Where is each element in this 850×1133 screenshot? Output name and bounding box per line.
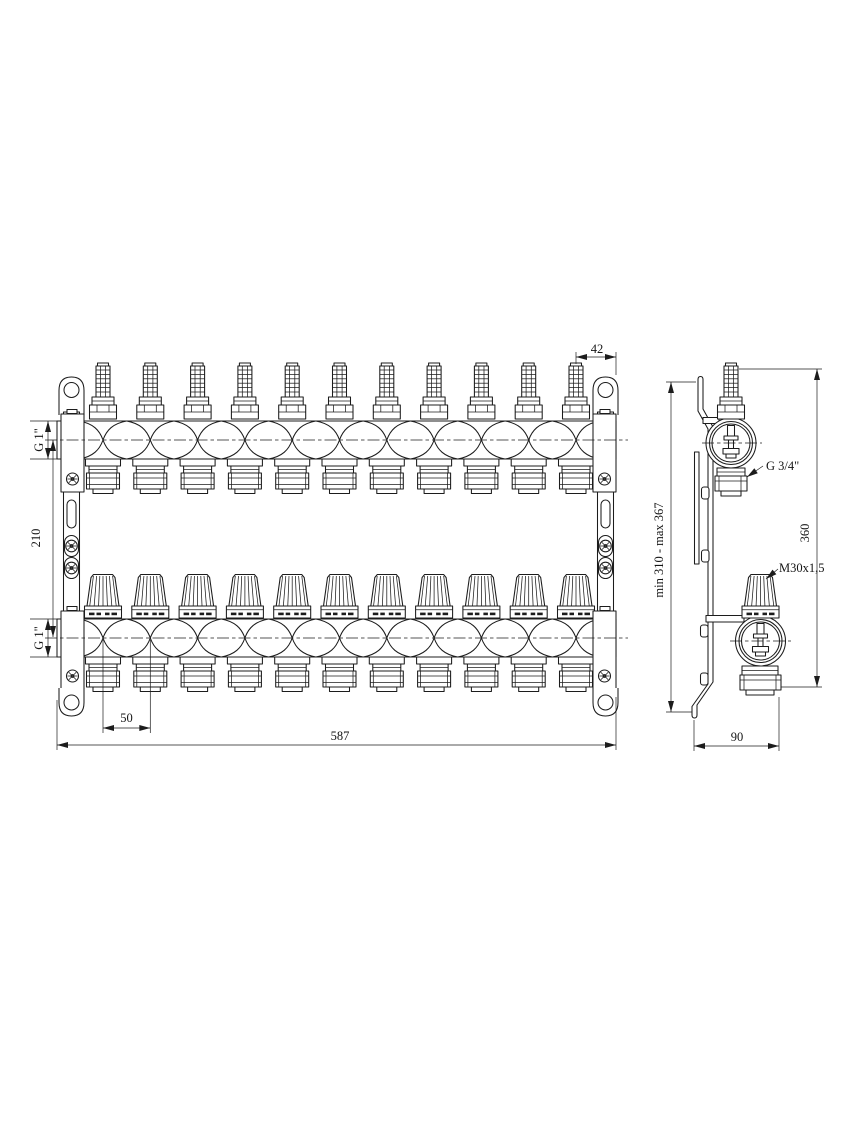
- compression-fitting-top: [322, 459, 357, 494]
- dimension-axis-distance: 210: [29, 440, 53, 637]
- compression-fitting-bottom: [559, 657, 594, 692]
- flow-valve-stem: [373, 363, 400, 419]
- outlet-thread-label: G 3/4": [766, 459, 799, 473]
- front-view: 42G 1"210G 1"50587: [29, 342, 628, 750]
- screw-icon: [66, 562, 78, 574]
- screw-icon: [600, 562, 612, 574]
- inlet-thread-bottom-label: G 1": [32, 626, 46, 650]
- flow-valve-stem: [421, 363, 448, 419]
- compression-fitting-top: [559, 459, 594, 494]
- side-bottom-assembly: [730, 575, 791, 696]
- valve-thread-label: M30x1,5: [779, 561, 825, 575]
- inlet-thread-top-label: G 1": [32, 428, 46, 452]
- screw-icon: [600, 540, 612, 552]
- side-view: G 3/4"M30x1,5min 310 - max 36736090: [652, 363, 825, 751]
- compression-fitting-top: [511, 459, 546, 494]
- dim-outlet-spacing-label: 50: [120, 711, 133, 725]
- flow-valve-stem: [90, 363, 117, 419]
- thermostatic-cap: [558, 575, 595, 619]
- left-bracket: [59, 377, 84, 716]
- compression-fitting-bottom: [180, 657, 215, 692]
- right-bracket: [593, 377, 618, 716]
- compression-fitting-bottom: [464, 657, 499, 692]
- leader-outlet-thread: G 3/4": [747, 459, 799, 477]
- thermostatic-cap: [226, 575, 263, 619]
- flow-valve-stem: [563, 363, 590, 419]
- flow-valve-stem: [231, 363, 258, 419]
- compression-fitting-bottom: [369, 657, 404, 692]
- technical-drawing-svg: 42G 1"210G 1"50587G 3/4"M30x1,5min 310 -…: [0, 0, 850, 1133]
- thermostatic-cap: [368, 575, 405, 619]
- compression-fitting-top: [417, 459, 452, 494]
- flow-valve-stem: [468, 363, 495, 419]
- thermostatic-cap: [510, 575, 547, 619]
- dimension-total-width: 587: [57, 697, 616, 750]
- screw-icon: [67, 473, 79, 485]
- dim-axis-distance-label: 210: [29, 529, 43, 548]
- thermostatic-cap: [132, 575, 169, 619]
- flow-valve-stem: [137, 363, 164, 419]
- dimension-bracket-depth: 90: [694, 697, 779, 751]
- thermostatic-cap: [463, 575, 500, 619]
- compression-fitting-top: [369, 459, 404, 494]
- screw-icon: [67, 670, 79, 682]
- dim-bracket-height-label: min 310 - max 367: [652, 502, 666, 597]
- compression-fitting-top: [180, 459, 215, 494]
- compression-fitting-top: [86, 459, 121, 494]
- screw-icon: [599, 670, 611, 682]
- dim-bracket-depth-label: 90: [731, 730, 744, 744]
- compression-fitting-bottom: [227, 657, 262, 692]
- compression-fitting-bottom: [417, 657, 452, 692]
- compression-fitting-top: [227, 459, 262, 494]
- screw-icon: [66, 540, 78, 552]
- compression-fitting-top: [275, 459, 310, 494]
- compression-fitting-bottom: [322, 657, 357, 692]
- screw-icon: [599, 473, 611, 485]
- compression-fitting-bottom: [511, 657, 546, 692]
- compression-fitting-top: [133, 459, 168, 494]
- thermostatic-cap: [179, 575, 216, 619]
- dimension-bracket-height: min 310 - max 367: [652, 382, 696, 712]
- dim-overall-height-label: 360: [798, 524, 812, 543]
- compression-fitting-top: [464, 459, 499, 494]
- flow-valve-stem: [184, 363, 211, 419]
- dim-end-offset-label: 42: [591, 342, 604, 356]
- flow-valve-stem: [515, 363, 542, 419]
- flow-valve-stem: [279, 363, 306, 419]
- flow-valve-stem: [326, 363, 353, 419]
- dim-total-width-label: 587: [331, 729, 350, 743]
- thermostatic-cap: [274, 575, 311, 619]
- drawing-page: 42G 1"210G 1"50587G 3/4"M30x1,5min 310 -…: [0, 0, 850, 1133]
- thermostatic-cap: [416, 575, 453, 619]
- thermostatic-cap: [321, 575, 358, 619]
- leader-valve-thread: M30x1,5: [766, 561, 825, 579]
- compression-fitting-bottom: [275, 657, 310, 692]
- thermostatic-cap: [85, 575, 122, 619]
